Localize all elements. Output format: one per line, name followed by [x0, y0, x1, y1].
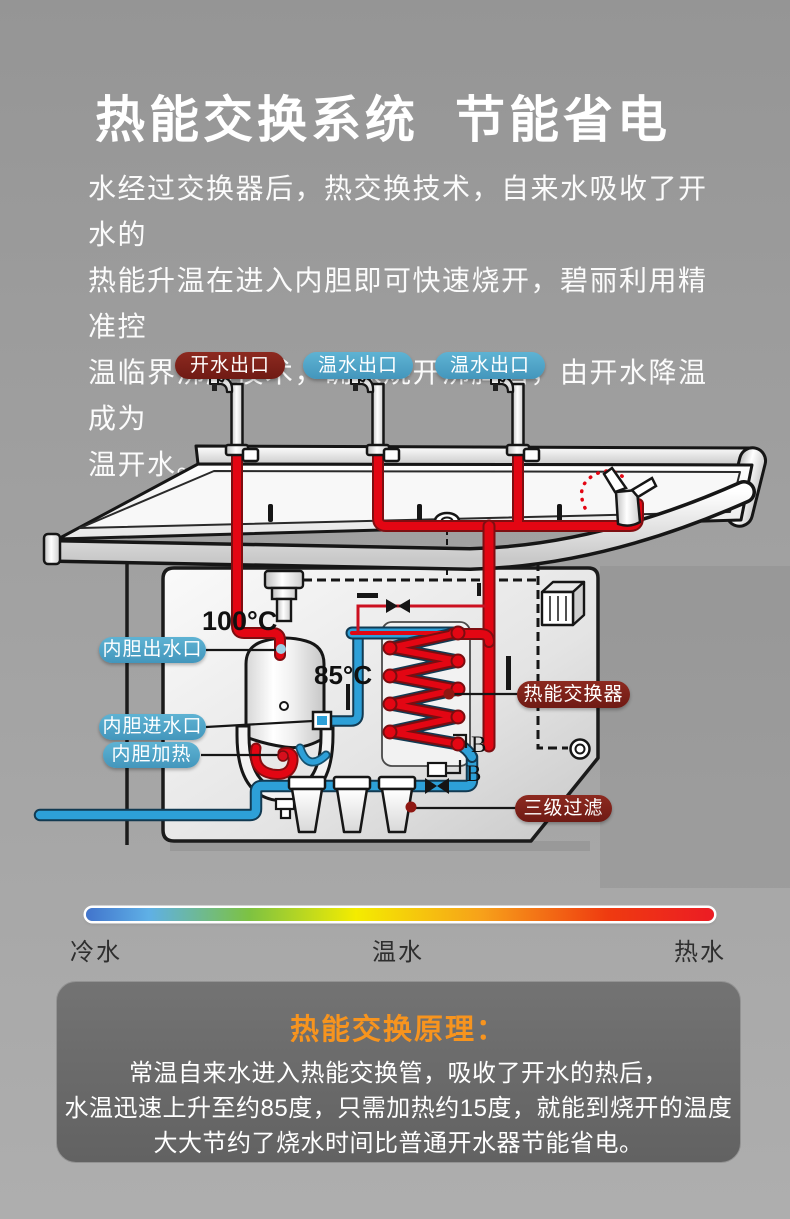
heater-point	[278, 751, 288, 761]
label-triple-filter: 三级过滤	[515, 795, 612, 822]
exchanger-point	[444, 689, 455, 700]
drain-slot	[268, 504, 273, 522]
b-marker-2: B	[466, 761, 481, 786]
b-marker-1: B	[471, 732, 486, 757]
triple-filter-cartridges	[289, 777, 415, 832]
back-rail	[196, 446, 752, 465]
tank-outlet-point	[276, 644, 286, 654]
label-tank-heater: 内胆加热	[103, 742, 200, 768]
label-heat-exchanger: 热能交换器	[517, 681, 630, 708]
title-part2: 节能省电	[455, 92, 671, 148]
label-hot-outlet: 开水出口	[175, 352, 285, 379]
filter-point	[406, 802, 417, 813]
wall-shadow	[600, 566, 790, 888]
label-warm-outlet-2: 温水出口	[435, 352, 545, 379]
label-warm-outlet-1: 温水出口	[303, 352, 413, 379]
principle-box: 热能交换原理： 常温自来水进入热能交换管，吸收了开水的热后， 水温迅速上升至约8…	[56, 981, 741, 1163]
title-part1: 热能交换系统	[95, 92, 419, 148]
counter-top	[44, 445, 768, 578]
page-title: 热能交换系统节能省电	[95, 80, 755, 152]
label-tank-inlet: 内胆进水口	[99, 714, 206, 740]
heat-exchange-infographic: 热能交换系统节能省电 水经过交换器后，热交换技术，自来水吸收了开水的 热能升温在…	[0, 0, 790, 1219]
temp-100c: 100°C	[202, 606, 277, 637]
label-tank-outlet: 内胆出水口	[99, 637, 206, 663]
legend-warm: 温水	[372, 932, 424, 967]
temp-85c: 85°C	[314, 660, 372, 691]
counter-left-cap	[44, 534, 60, 564]
principle-text: 常温自来水进入热能交换管，吸收了开水的热后， 水温迅速上升至约85度，只需加热约…	[57, 1056, 740, 1161]
temperature-gradient-bar	[86, 908, 714, 921]
legend-cold: 冷水	[70, 932, 122, 967]
principle-heading: 热能交换原理：	[57, 1006, 740, 1048]
drain-slot	[417, 504, 422, 522]
system-diagram: B B	[0, 340, 790, 900]
drain-slot	[557, 504, 562, 522]
legend-hot: 热水	[674, 932, 726, 967]
temperature-legend: 冷水 温水 热水	[0, 932, 790, 967]
junction-box-icon	[542, 582, 584, 625]
tank-inlet-port	[317, 716, 327, 725]
